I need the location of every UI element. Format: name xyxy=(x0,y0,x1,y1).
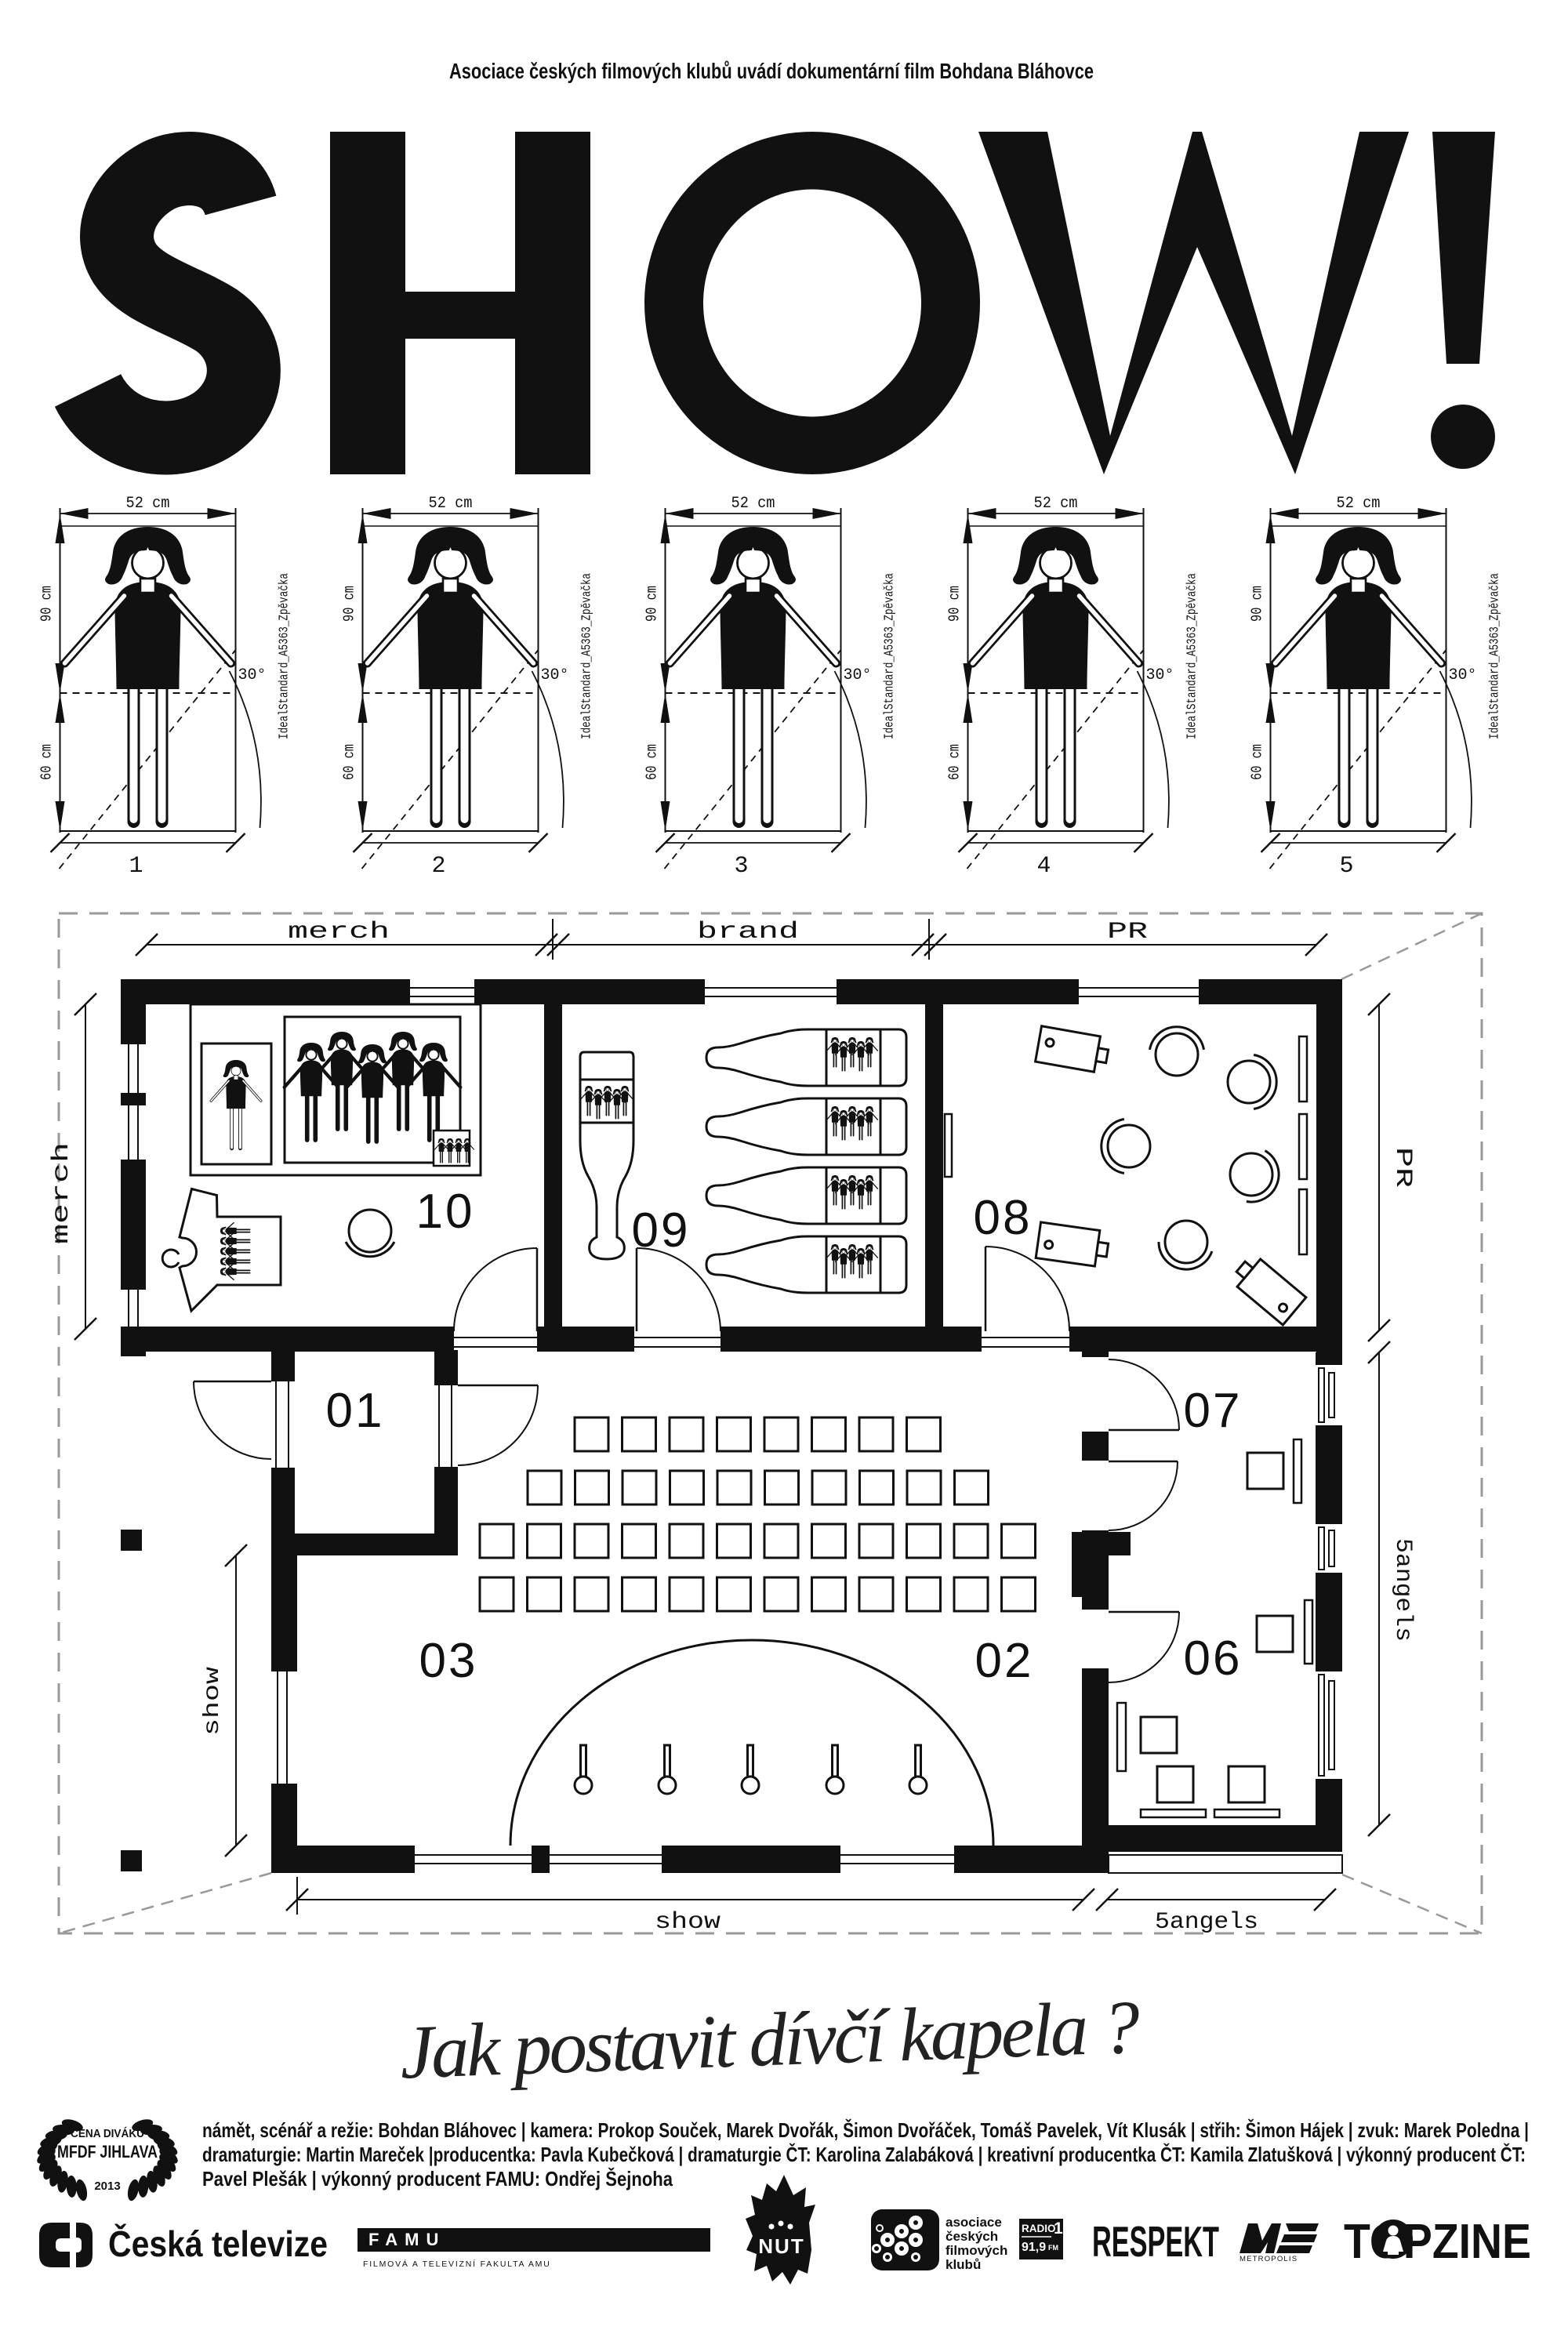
svg-text:03: 03 xyxy=(419,1634,478,1688)
svg-text:asociace: asociace xyxy=(946,2215,1002,2230)
svg-text:5angels: 5angels xyxy=(1155,1909,1258,1936)
svg-text:PR: PR xyxy=(1389,1147,1416,1188)
svg-text:merch: merch xyxy=(288,919,390,946)
svg-text:5: 5 xyxy=(1339,853,1353,880)
svg-text:IdealStandard_A5363_Zpěvačka: IdealStandard_A5363_Zpěvačka xyxy=(1488,573,1503,739)
svg-text:PR: PR xyxy=(1107,919,1148,946)
svg-text:09: 09 xyxy=(632,1203,691,1258)
svg-text:TOPZINE: TOPZINE xyxy=(1344,2215,1531,2269)
svg-text:Česká televize: Česká televize xyxy=(108,2223,328,2264)
svg-text:1: 1 xyxy=(1054,2220,1063,2238)
svg-text:IdealStandard_A5363_Zpěvačka: IdealStandard_A5363_Zpěvačka xyxy=(1185,573,1200,739)
svg-text:RESPEKT: RESPEKT xyxy=(1092,2217,1219,2266)
svg-text:FILMOVÁ A TELEVIZNÍ FAKULTA AM: FILMOVÁ A TELEVIZNÍ FAKULTA AMU xyxy=(363,2259,551,2269)
svg-text:1: 1 xyxy=(129,853,143,880)
svg-text:06: 06 xyxy=(1184,1632,1243,1686)
svg-text:merch: merch xyxy=(49,1142,75,1244)
svg-text:IdealStandard_A5363_Zpěvačka: IdealStandard_A5363_Zpěvačka xyxy=(580,573,595,739)
svg-text:2: 2 xyxy=(431,853,445,880)
svg-text:FM: FM xyxy=(1048,2244,1058,2252)
svg-text:3: 3 xyxy=(734,853,748,880)
svg-text:filmových: filmových xyxy=(946,2243,1007,2258)
svg-text:Asociace českých filmových klu: Asociace českých filmových klubů uvádí d… xyxy=(449,59,1094,83)
svg-text:CENA DIVÁKŮ: CENA DIVÁKŮ xyxy=(71,2125,144,2140)
svg-text:FAMU: FAMU xyxy=(368,2230,445,2249)
svg-text:2013: 2013 xyxy=(94,2180,120,2193)
svg-text:Jak postavit dívčí kapela ?: Jak postavit dívčí kapela ? xyxy=(398,1985,1141,2095)
svg-text:námět, scénář a režie: Bohdan: námět, scénář a režie: Bohdan Bláhovec |… xyxy=(202,2118,1529,2142)
svg-text:08: 08 xyxy=(974,1191,1033,1245)
svg-text:RADIO: RADIO xyxy=(1022,2223,1056,2234)
svg-text:MFDF JIHLAVA: MFDF JIHLAVA xyxy=(57,2142,158,2161)
svg-text:brand: brand xyxy=(697,919,799,946)
svg-text:91,9: 91,9 xyxy=(1022,2241,1046,2254)
svg-text:02: 02 xyxy=(975,1634,1034,1688)
svg-text:Pavel Plešák | výkonný produce: Pavel Plešák | výkonný producent FAMU: O… xyxy=(202,2167,673,2190)
svg-text:show: show xyxy=(655,1909,720,1936)
svg-text:show: show xyxy=(201,1667,225,1736)
svg-text:METROPOLIS: METROPOLIS xyxy=(1240,2255,1298,2263)
svg-text:IdealStandard_A5363_Zpěvačka: IdealStandard_A5363_Zpěvačka xyxy=(278,573,292,739)
svg-text:NUT: NUT xyxy=(758,2234,804,2258)
svg-text:IdealStandard_A5363_Zpěvačka: IdealStandard_A5363_Zpěvačka xyxy=(883,573,898,739)
svg-text:07: 07 xyxy=(1184,1384,1243,1438)
svg-text:01: 01 xyxy=(326,1384,385,1438)
svg-text:10: 10 xyxy=(416,1185,475,1239)
svg-text:dramaturgie: Martin Mareček |p: dramaturgie: Martin Mareček |producentka… xyxy=(202,2143,1526,2166)
svg-text:5angels: 5angels xyxy=(1389,1538,1416,1642)
svg-text:českých: českých xyxy=(946,2229,998,2244)
svg-text:4: 4 xyxy=(1036,853,1051,880)
svg-text:klubů: klubů xyxy=(946,2257,981,2272)
